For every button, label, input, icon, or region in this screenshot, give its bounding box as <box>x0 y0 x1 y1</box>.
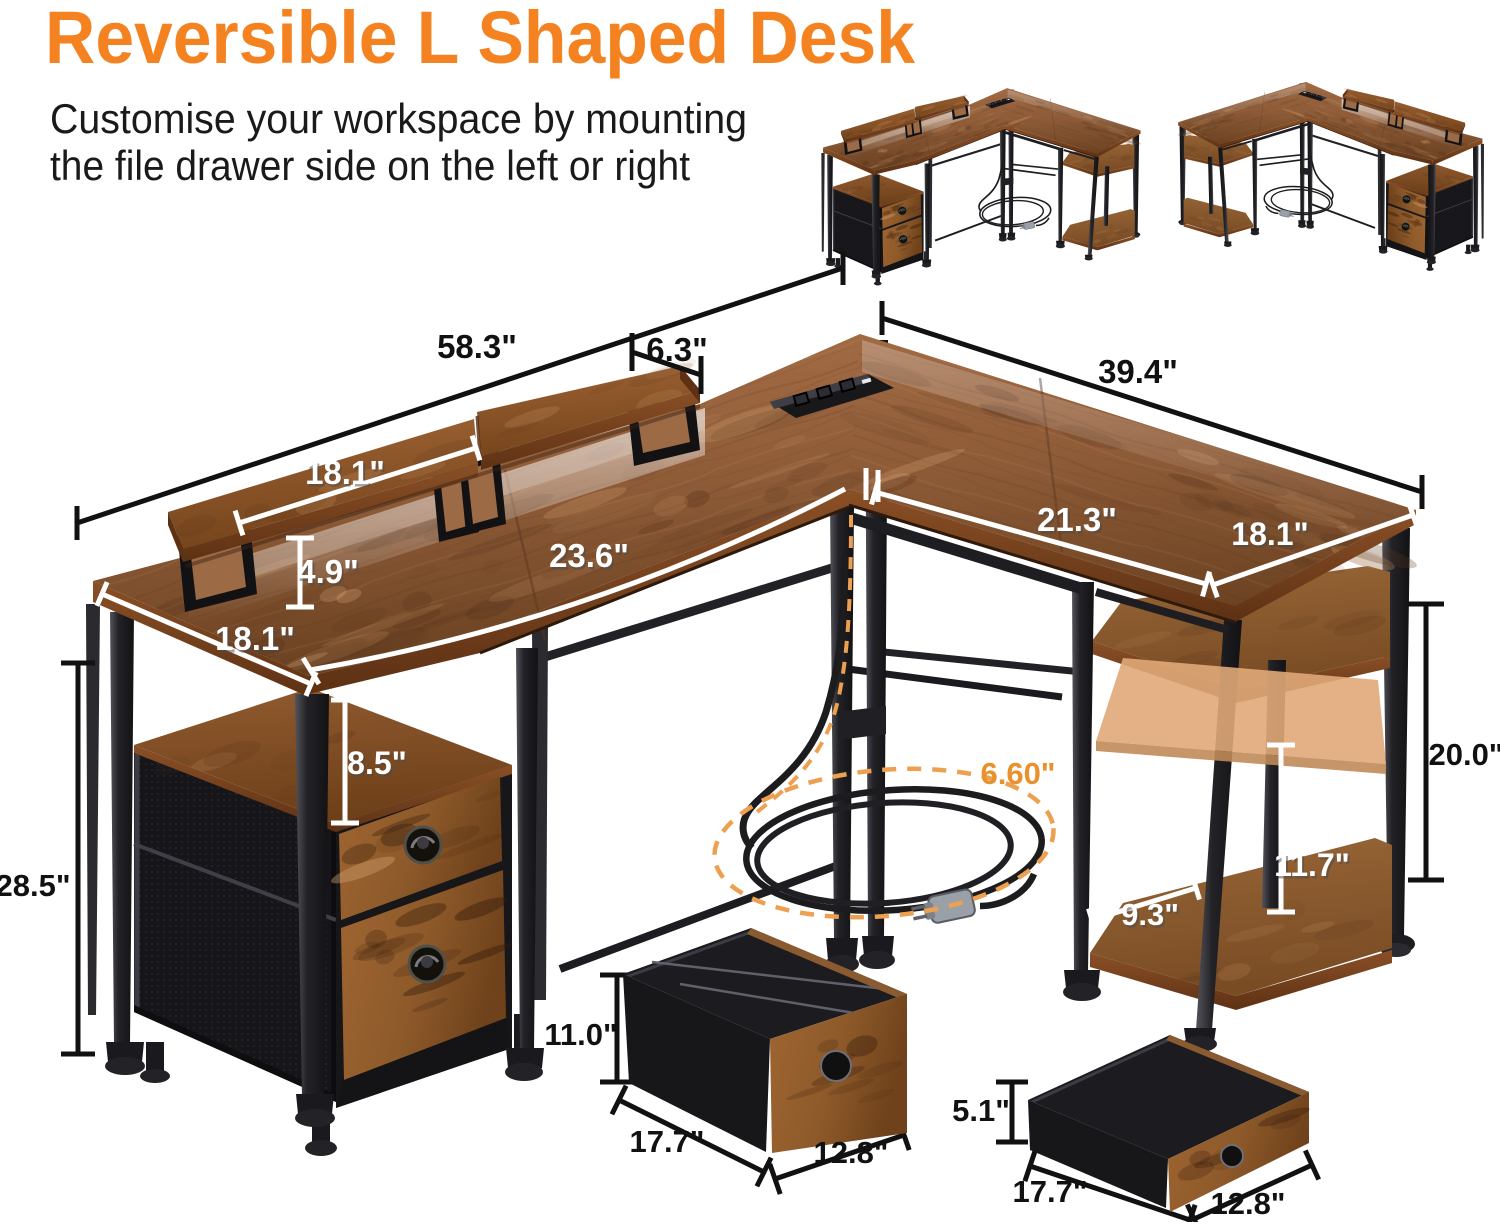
svg-text:21.3": 21.3" <box>1037 501 1117 538</box>
svg-text:11.0": 11.0" <box>544 1017 617 1052</box>
svg-text:17.7": 17.7" <box>629 1124 704 1159</box>
svg-text:12.8": 12.8" <box>1210 1186 1285 1221</box>
svg-text:39.4": 39.4" <box>1098 353 1178 390</box>
svg-text:58.3": 58.3" <box>437 328 517 365</box>
svg-text:18.1": 18.1" <box>1231 516 1308 552</box>
svg-text:23.6": 23.6" <box>549 537 629 574</box>
svg-text:6.60": 6.60" <box>980 756 1055 791</box>
svg-text:11.7": 11.7" <box>1274 847 1350 883</box>
svg-text:the file drawer side on the le: the file drawer side on the left or righ… <box>50 142 690 189</box>
svg-text:8.5": 8.5" <box>347 745 407 781</box>
svg-text:9.3": 9.3" <box>1121 897 1179 932</box>
svg-text:Reversible L Shaped Desk: Reversible L Shaped Desk <box>45 0 916 79</box>
svg-text:6.3": 6.3" <box>646 331 708 368</box>
svg-text:17.7": 17.7" <box>1012 1174 1087 1209</box>
svg-text:18.1": 18.1" <box>215 620 295 657</box>
svg-text:4.9": 4.9" <box>297 553 359 590</box>
svg-text:20.0": 20.0" <box>1428 737 1500 772</box>
svg-text:12.8": 12.8" <box>813 1135 888 1170</box>
svg-text:28.5": 28.5" <box>0 868 71 903</box>
svg-text:5.1": 5.1" <box>952 1093 1010 1128</box>
svg-text:18.1": 18.1" <box>305 454 385 491</box>
svg-text:Customise your workspace by mo: Customise your workspace by mounting <box>50 95 747 142</box>
